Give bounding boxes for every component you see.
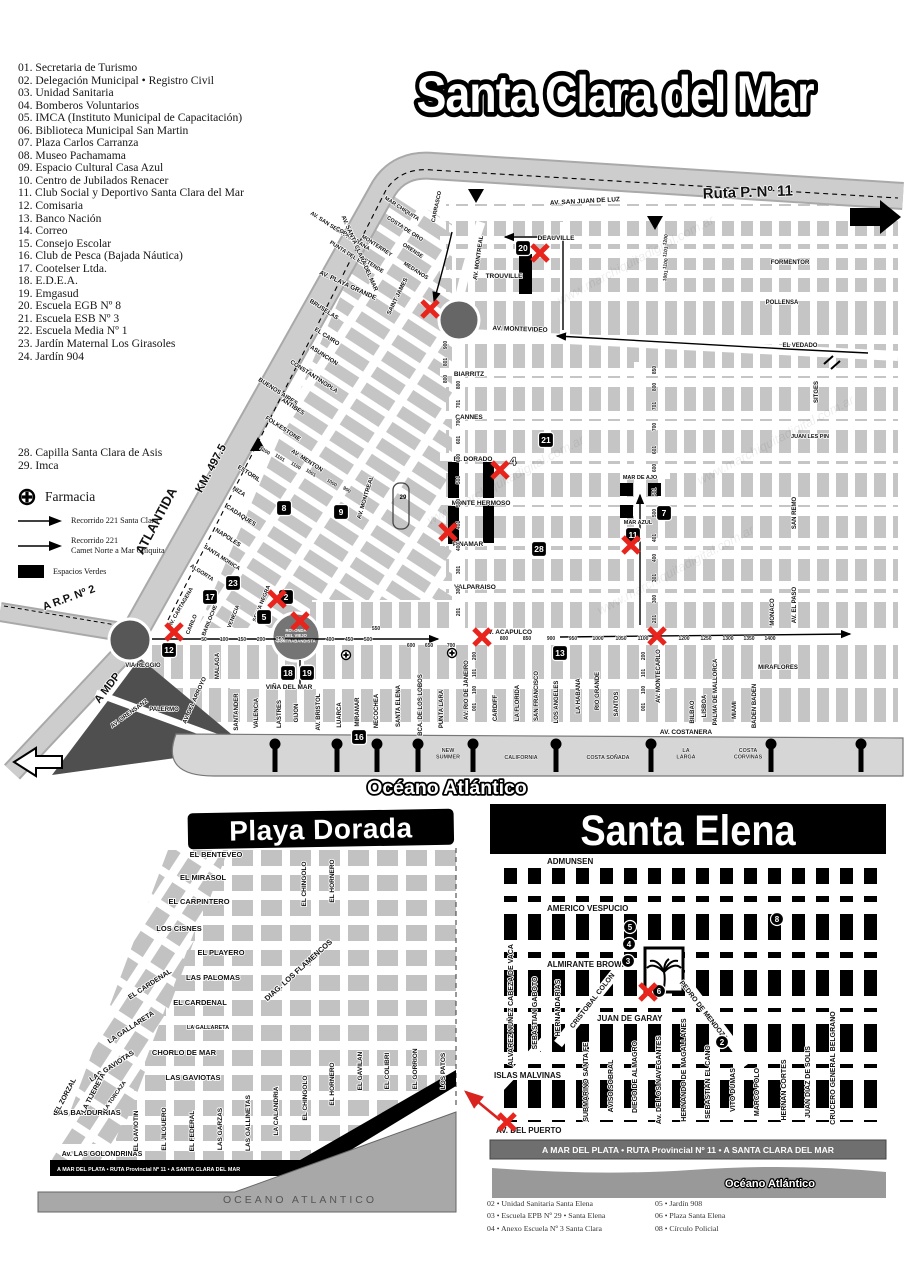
house-number: 600 xyxy=(456,454,462,463)
se-street-label: SEBASTIAN EL CANO xyxy=(705,1045,712,1119)
street-label: GIJON xyxy=(294,704,300,723)
se-street-label: AMERICO VESPUCIO xyxy=(547,904,628,913)
map-marker: 19 xyxy=(300,666,315,681)
se-map-marker: 8 xyxy=(771,913,784,926)
street-label: AV. RIO DE JANEIRO xyxy=(464,660,470,720)
legend-farmacia: Farmacia xyxy=(18,488,244,506)
pd-street-label: LAS GALLINETAS xyxy=(245,1094,252,1151)
se-legend-item: 02 • Unidad Sanitaria Santa Elena xyxy=(487,1198,605,1210)
street-label: PUNTA LARA xyxy=(439,689,445,728)
map-marker: 13 xyxy=(553,646,568,661)
se-street-label: ALMIRANTE BROWN xyxy=(547,960,628,969)
street-label: PALMA DE MALLORCA xyxy=(713,658,719,725)
pd-street-label: LA CALANDRIA xyxy=(273,1086,280,1135)
map-marker: 20 xyxy=(516,241,531,256)
pd-ocean-label: OCEANO ATLANTICO xyxy=(223,1194,377,1206)
se-plaza-palm xyxy=(645,948,683,992)
map-marker: 28 xyxy=(532,542,547,557)
se-legend-item: 03 • Escuela EPB Nº 29 • Santa Elena xyxy=(487,1210,605,1222)
house-number: 700 xyxy=(456,418,462,427)
street-label: MIRAMAR xyxy=(355,697,361,727)
se-map-marker: 3 xyxy=(622,955,635,968)
house-number: 150 xyxy=(238,637,247,643)
house-number: 100 xyxy=(472,686,478,695)
se-street-label: CRUCERO GENERAL BELGRANO xyxy=(830,1011,837,1125)
map-marker: 12 xyxy=(162,643,177,658)
street-label: A R.P. Nº 2 xyxy=(41,583,97,613)
house-number: 801 xyxy=(443,358,449,367)
pd-street-label: EL GORRION xyxy=(412,1048,419,1089)
house-number: 400 xyxy=(456,543,462,552)
house-number: 300 xyxy=(652,595,658,604)
house-number: 501 xyxy=(456,476,462,485)
svg-text:28: 28 xyxy=(534,544,544,554)
legend-item: 18. E.D.E.A. xyxy=(18,275,244,288)
street-label: MAR DE AJO xyxy=(623,475,658,481)
house-number: 501 xyxy=(652,488,658,497)
legend-item: 14. Correo xyxy=(18,225,244,238)
legend-item: 07. Plaza Carlos Carranza xyxy=(18,137,244,150)
svg-text:23: 23 xyxy=(228,578,238,588)
street-label: LA FLORIDA xyxy=(515,684,521,721)
street-label: VIÑA DEL MAR xyxy=(266,682,313,691)
legend-recorrido-2: Recorrido 221 Camet Norte a Mar Chiquita xyxy=(18,536,244,555)
se-map-marker: 2 xyxy=(716,1036,729,1049)
pd-street-label: EL COLIBRI xyxy=(384,1052,391,1089)
house-number: 600 xyxy=(407,643,416,649)
se-street-label: HERNAN CORTES xyxy=(781,1059,788,1120)
svg-text:12: 12 xyxy=(164,645,174,655)
house-number: 001 xyxy=(641,703,647,712)
pd-golondrinas-road xyxy=(48,1144,300,1151)
map-marker: 18 xyxy=(281,666,296,681)
house-number: 1400 xyxy=(764,636,775,642)
svg-text:Playa Dorada: Playa Dorada xyxy=(229,812,413,846)
house-number: 200 xyxy=(472,652,478,661)
legend-item: 12. Comisaria xyxy=(18,200,244,213)
street-label: SANTOS xyxy=(614,692,620,717)
house-number: 900 xyxy=(547,636,556,642)
house-number: 700 xyxy=(652,423,658,432)
pd-street-label: EL CHINGOLO xyxy=(301,861,308,906)
street-label: LA HABANA xyxy=(576,678,582,714)
house-number: 001 xyxy=(472,703,478,712)
street-label: BIARRITZ xyxy=(454,371,484,378)
house-number: 800 xyxy=(456,381,462,390)
pharmacy-icon xyxy=(448,649,457,658)
pd-street-label: EL CARPINTERO xyxy=(168,897,229,906)
se-route-band-label: A MAR DEL PLATA • RUTA Provincial Nº 11 … xyxy=(542,1145,835,1155)
house-number: 900 xyxy=(443,341,449,350)
route-arrow-icon xyxy=(18,541,62,551)
roundabout-west xyxy=(109,619,151,661)
street-label: AV. ACAPULCO xyxy=(484,629,532,636)
street-label: POLLENSA xyxy=(766,300,799,306)
se-street-label: AVISO SOBRAL xyxy=(608,1059,615,1112)
svg-text:5: 5 xyxy=(628,923,633,932)
se-title: Santa Elena xyxy=(580,806,796,855)
green-space xyxy=(620,483,633,496)
svg-text:17: 17 xyxy=(205,592,215,602)
street-label: SITGES xyxy=(814,381,820,403)
se-street-label: AV. DEL PUERTO xyxy=(496,1126,562,1135)
legend-recorrido-1: Recorrido 221 Santa Clara xyxy=(18,516,244,526)
svg-text:5: 5 xyxy=(262,612,267,622)
pd-street-label: EL BENTEVEO xyxy=(190,850,243,859)
street-label: EL VEDADO xyxy=(783,343,818,349)
pd-street-label: EL MIRASOL xyxy=(180,873,227,882)
street-label: BILBAO xyxy=(690,700,696,723)
legend-item: 24. Jardín 904 xyxy=(18,351,244,364)
triangle-marker xyxy=(468,189,484,203)
street-label: AV. EL PASO xyxy=(792,586,798,623)
house-number: 1200 xyxy=(258,446,271,457)
street-label: MALAGA xyxy=(215,652,221,679)
svg-text:21: 21 xyxy=(541,435,551,445)
street-label: SANTA ELENA xyxy=(396,684,402,727)
svg-text:6: 6 xyxy=(657,987,662,996)
green-space xyxy=(483,505,494,543)
map-marker: 9 xyxy=(334,505,349,520)
se-street-label: ISLAS MALVINAS xyxy=(494,1071,562,1080)
street-label: LISBOA xyxy=(702,694,708,717)
pd-street-label: EL GAVILAN xyxy=(357,1051,364,1090)
pd-street-label: LOS PATOS xyxy=(440,1052,447,1089)
pd-street-label: EL FEDERAL xyxy=(189,1111,196,1152)
pd-street-label: EL CARDENAL xyxy=(173,998,227,1007)
svg-text:9: 9 xyxy=(339,507,344,517)
se-legend-item: 04 • Anexo Escuela Nº 3 Santa Clara xyxy=(487,1223,605,1235)
street-label: SANTANDER xyxy=(234,693,240,731)
map-marker: 29 xyxy=(400,495,407,501)
pd-street-label: EL PLAYERO xyxy=(197,948,244,957)
house-number: 100 xyxy=(220,637,229,643)
house-number: 701 xyxy=(652,402,658,411)
svg-text:4: 4 xyxy=(627,940,632,949)
legend-espacios: Espacios Verdes xyxy=(18,565,244,578)
pd-street-label: EL JILGUERO xyxy=(161,1107,168,1150)
pd-street-label: LAS PALOMAS xyxy=(186,973,240,982)
beach-label: CALIFORNIA xyxy=(504,755,537,761)
pd-street-label: EL GAVIOTIN xyxy=(133,1110,140,1151)
svg-text:7: 7 xyxy=(662,508,667,518)
legend-espacios-label: Espacios Verdes xyxy=(53,567,106,577)
street-label: PALERMO xyxy=(149,707,179,713)
street-label: CARDIFF xyxy=(493,695,499,722)
se-ocean-label: Océano Atlántico xyxy=(725,1178,815,1190)
espacios-verdes-icon xyxy=(18,565,44,578)
ocean-label-main: Océano Atlántico xyxy=(367,777,527,799)
svg-text:8: 8 xyxy=(775,915,780,924)
house-number: 700 xyxy=(447,643,456,649)
legend-item: 05. IMCA (Instituto Municipal de Capacit… xyxy=(18,112,244,125)
house-number: 601 xyxy=(652,446,658,455)
svg-text:8: 8 xyxy=(282,503,287,513)
svg-text:29: 29 xyxy=(400,495,407,501)
se-street-label: SEBASTIAN GABOTO xyxy=(532,976,539,1050)
map-marker: 7 xyxy=(657,506,672,521)
svg-text:20: 20 xyxy=(518,243,528,253)
pd-street-label: LAS GAVIOTAS xyxy=(165,1073,220,1082)
se-street-label: ADMUNSEN xyxy=(547,857,593,866)
street-label: DEAUVILLE xyxy=(538,235,576,242)
map-marker: 16 xyxy=(352,730,367,745)
street-label: LOS ANGELES xyxy=(554,681,560,724)
street-label: VIA REGGIO xyxy=(125,663,161,669)
house-number: 600 xyxy=(652,464,658,473)
map-poster: Ruta P. Nº 11AV. SAN JUAN DE LUZATLANTID… xyxy=(0,0,905,1280)
legend-item: 03. Unidad Sanitaria xyxy=(18,87,244,100)
house-number: 301 xyxy=(456,566,462,575)
house-number: 201 xyxy=(652,615,658,624)
house-number: 1300 xyxy=(722,636,733,642)
street-label: TROUVILLE xyxy=(486,273,523,280)
house-number: 50 xyxy=(201,637,207,643)
street-label: LUARCA xyxy=(337,702,343,728)
se-street-label: JUAN DE GARAY xyxy=(597,1014,663,1023)
house-number: 800 xyxy=(443,375,449,384)
page-title: Santa Clara del Mar xyxy=(416,66,814,124)
se-street-label: VITO DUMAS xyxy=(730,1068,737,1112)
legend-item: 01. Secretaria de Turismo xyxy=(18,62,244,75)
map-marker: 17 xyxy=(203,590,218,605)
house-number: 1200 xyxy=(678,636,689,642)
house-number: 401 xyxy=(456,521,462,530)
pd-street-label: LA GALLARETA xyxy=(187,1025,229,1031)
house-number: 950 xyxy=(569,636,578,642)
beach-label: COSTA SOÑADA xyxy=(586,754,629,761)
street-label: MIRAFLORES xyxy=(758,665,798,671)
legend-list: 01. Secretaria de Turismo02. Delegación … xyxy=(18,62,244,363)
pd-street-label: LAS GARZAS xyxy=(217,1107,224,1150)
street-label: AV. BRISTOL xyxy=(316,693,322,730)
beach-strip xyxy=(172,734,903,776)
legend-farmacia-label: Farmacia xyxy=(45,491,95,504)
street-label: SAN REMO xyxy=(792,497,798,530)
street-label: MIAMI xyxy=(732,701,738,719)
house-number: 701 xyxy=(456,400,462,409)
house-number: 400 xyxy=(652,554,658,563)
street-label: AV. COSTANERA xyxy=(660,729,713,736)
se-street-label: HERNANDARIAS xyxy=(555,979,562,1036)
legend-item: 16. Club de Pesca (Bajada Náutica) xyxy=(18,250,244,263)
se-street-label: SUBMARINO SANTA FE xyxy=(583,1042,590,1122)
house-number: 800 xyxy=(652,383,658,392)
svg-text:3: 3 xyxy=(626,957,631,966)
santa-elena-inset: Santa Elena A MAR DEL PLATA • RUTA Provi… xyxy=(466,804,886,1198)
green-space xyxy=(620,505,633,518)
street-label: FORMENTOR xyxy=(771,260,810,266)
roundabout-north xyxy=(439,300,479,340)
se-ocean xyxy=(492,1167,886,1198)
svg-text:2: 2 xyxy=(720,1038,725,1047)
se-legend-item: 06 • Plaza Santa Elena xyxy=(655,1210,725,1222)
se-legend-item: 05 • Jardín 908 xyxy=(655,1198,725,1210)
house-number: 201 xyxy=(456,608,462,617)
house-number: 1050 xyxy=(615,636,626,642)
house-number: 1250 xyxy=(700,636,711,642)
pd-street-label: EL CHINGOLO xyxy=(302,1075,309,1120)
se-street-label: MARCO POLO xyxy=(754,1067,761,1116)
street-label: VALENCIA xyxy=(254,697,260,728)
legend-item: 29. Imca xyxy=(18,460,244,473)
pd-street-label: CHORLO DE MAR xyxy=(152,1048,217,1057)
legend-item: 23. Jardín Maternal Los Girasoles xyxy=(18,338,244,351)
house-number: 800 xyxy=(500,636,509,642)
playa-dorada-inset: Playa Dorada A MAR DEL PLATA • RUTA Prov… xyxy=(38,809,456,1212)
house-number: 850 xyxy=(523,636,532,642)
pd-street-label: EL HORNERO xyxy=(329,1062,336,1105)
house-number: 200 xyxy=(641,652,647,661)
rotonda-label: CONTRABANDISTA xyxy=(276,638,315,643)
legend-item: 28. Capilla Santa Clara de Asis xyxy=(18,447,244,460)
se-street-label: Av. DE LOS NAVEGANTES xyxy=(656,1036,663,1124)
house-number: 400 xyxy=(326,637,335,643)
svg-text:18: 18 xyxy=(283,668,293,678)
rp2-road xyxy=(0,612,122,632)
house-number: 450 xyxy=(345,637,354,643)
route-arrow-icon xyxy=(18,516,62,526)
se-street-label: ALVAREZ NUÑEZ CABEZA DE VACA xyxy=(506,944,515,1066)
street-label: MONACO xyxy=(770,598,776,626)
street-label: BADEN BADEN xyxy=(752,684,758,728)
se-legend-item: 08 • Círculo Policial xyxy=(655,1223,725,1235)
se-map-marker: 5 xyxy=(624,921,637,934)
pd-route-band-label: A MAR DEL PLATA • RUTA Provincial Nº 11 … xyxy=(57,1167,240,1173)
street-label: BCA. DE LOS LOBOS xyxy=(418,674,424,736)
pd-street-label: LOS CISNES xyxy=(156,924,201,933)
street-label: RIO GRANDE xyxy=(595,672,601,710)
house-number: 550 xyxy=(372,626,381,632)
street-label: NECOCHEA xyxy=(374,693,380,728)
legend-recorrido-1-label: Recorrido 221 Santa Clara xyxy=(71,516,158,526)
legend-panel: 01. Secretaria de Turismo02. Delegación … xyxy=(18,62,244,578)
svg-text:16: 16 xyxy=(354,732,364,742)
se-street-label: DIEGO DE ALMAGRO xyxy=(632,1040,639,1113)
house-number: 650 xyxy=(425,643,434,649)
pd-title: Playa Dorada xyxy=(188,809,455,850)
street-label: LASTRES xyxy=(277,700,283,728)
house-number: 401 xyxy=(652,534,658,543)
map-marker: 21 xyxy=(539,433,554,448)
svg-text:19: 19 xyxy=(302,668,312,678)
street-label: SAN FRANCISCO xyxy=(534,671,540,721)
street-label: MAR AZUL xyxy=(624,520,653,526)
house-number: 101 xyxy=(472,669,478,678)
house-number: 850 xyxy=(652,366,658,375)
house-number: 100 xyxy=(641,686,647,695)
pd-street-label: EL HORNERO xyxy=(329,859,336,902)
map-marker: 5 xyxy=(257,610,272,625)
house-number: 200 xyxy=(257,637,266,643)
pharmacy-icon xyxy=(18,488,36,506)
house-number: 1350 xyxy=(743,636,754,642)
street-label: AV. MONTECARLO xyxy=(656,649,662,703)
se-map-marker: 4 xyxy=(623,938,636,951)
house-number: 1100 xyxy=(638,636,649,642)
se-street-label: JUAN DIAZ DE SOLIS xyxy=(805,1046,812,1118)
legend-recorrido-2-line1: Recorrido 221 xyxy=(71,536,118,545)
house-number: 101 xyxy=(641,669,647,678)
svg-text:13: 13 xyxy=(555,648,565,658)
pd-street-label: Av. LAS GOLONDRINAS xyxy=(62,1151,143,1158)
map-marker: 8 xyxy=(277,501,292,516)
house-number: 601 xyxy=(456,436,462,445)
legend-list-secondary: 28. Capilla Santa Clara de Asis29. Imca xyxy=(18,447,244,472)
house-number: 1000 xyxy=(592,636,603,642)
street-label: Ruta P. Nº 11 xyxy=(702,182,793,202)
house-number: 300 xyxy=(456,586,462,595)
pharmacy-icon xyxy=(342,651,351,660)
legend-recorrido-2-line2: Camet Norte a Mar Chiquita xyxy=(71,546,165,555)
house-number: 500 xyxy=(364,637,373,643)
se-street-label: HERNANDO DE MAGALLANES xyxy=(681,1018,688,1122)
